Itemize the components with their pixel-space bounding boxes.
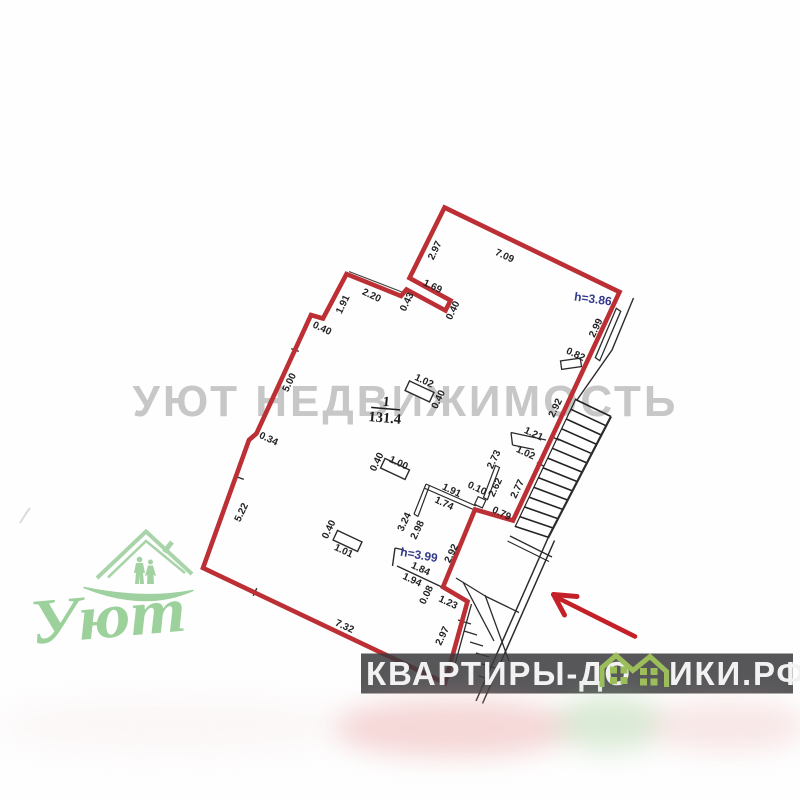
svg-text:2.73: 2.73	[485, 448, 504, 471]
svg-text:Уют: Уют	[27, 573, 189, 658]
svg-text:0.40: 0.40	[311, 320, 334, 338]
svg-text:КВАРТИРЫ-ДО: КВАРТИРЫ-ДО	[366, 655, 632, 692]
svg-text:2.97: 2.97	[434, 625, 453, 648]
svg-text:0.08: 0.08	[418, 584, 437, 607]
svg-text:131.4: 131.4	[368, 409, 402, 428]
svg-text:0.34: 0.34	[257, 430, 280, 448]
svg-text:ИКИ.РФ: ИКИ.РФ	[669, 655, 800, 692]
svg-text:5.22: 5.22	[233, 501, 252, 524]
svg-text:1.21: 1.21	[522, 425, 545, 443]
svg-text:1.02: 1.02	[514, 444, 537, 462]
svg-text:h=3.86: h=3.86	[573, 289, 613, 308]
svg-text:2.98: 2.98	[409, 519, 428, 542]
svg-text:2.62: 2.62	[487, 476, 506, 499]
svg-text:1.74: 1.74	[433, 495, 456, 513]
svg-text:УЮТ НЕДВИЖИМОСТЬ: УЮТ НЕДВИЖИМОСТЬ	[132, 377, 678, 426]
svg-text:7.09: 7.09	[493, 247, 516, 265]
